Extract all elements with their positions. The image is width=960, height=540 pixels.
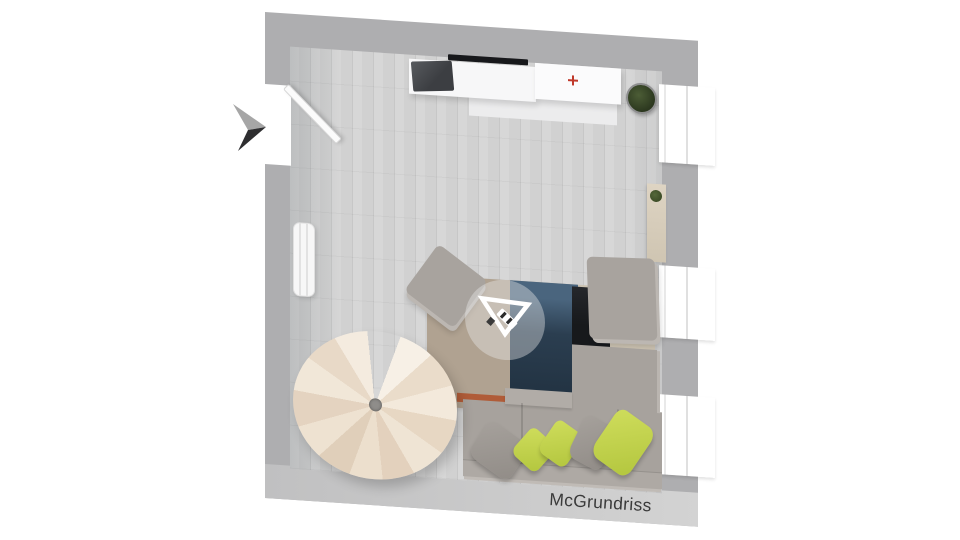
window-top [659,84,715,166]
floorplan-render: McGrundriss [0,0,960,540]
ottoman-right [587,257,658,341]
window-bottom [659,394,715,478]
triangle-logo-icon [465,277,545,362]
logo-watermark-badge [465,277,545,362]
sideboard-right [535,63,621,105]
sofa-chaise [572,344,657,414]
red-decor-icon [568,75,578,86]
room-walls [265,12,698,527]
radiator [293,222,315,297]
view-direction-arrow-icon [225,100,271,158]
flat-tv [411,61,454,92]
staircase-center-pole [369,398,382,412]
small-plant [650,190,662,203]
window-middle [659,265,715,341]
